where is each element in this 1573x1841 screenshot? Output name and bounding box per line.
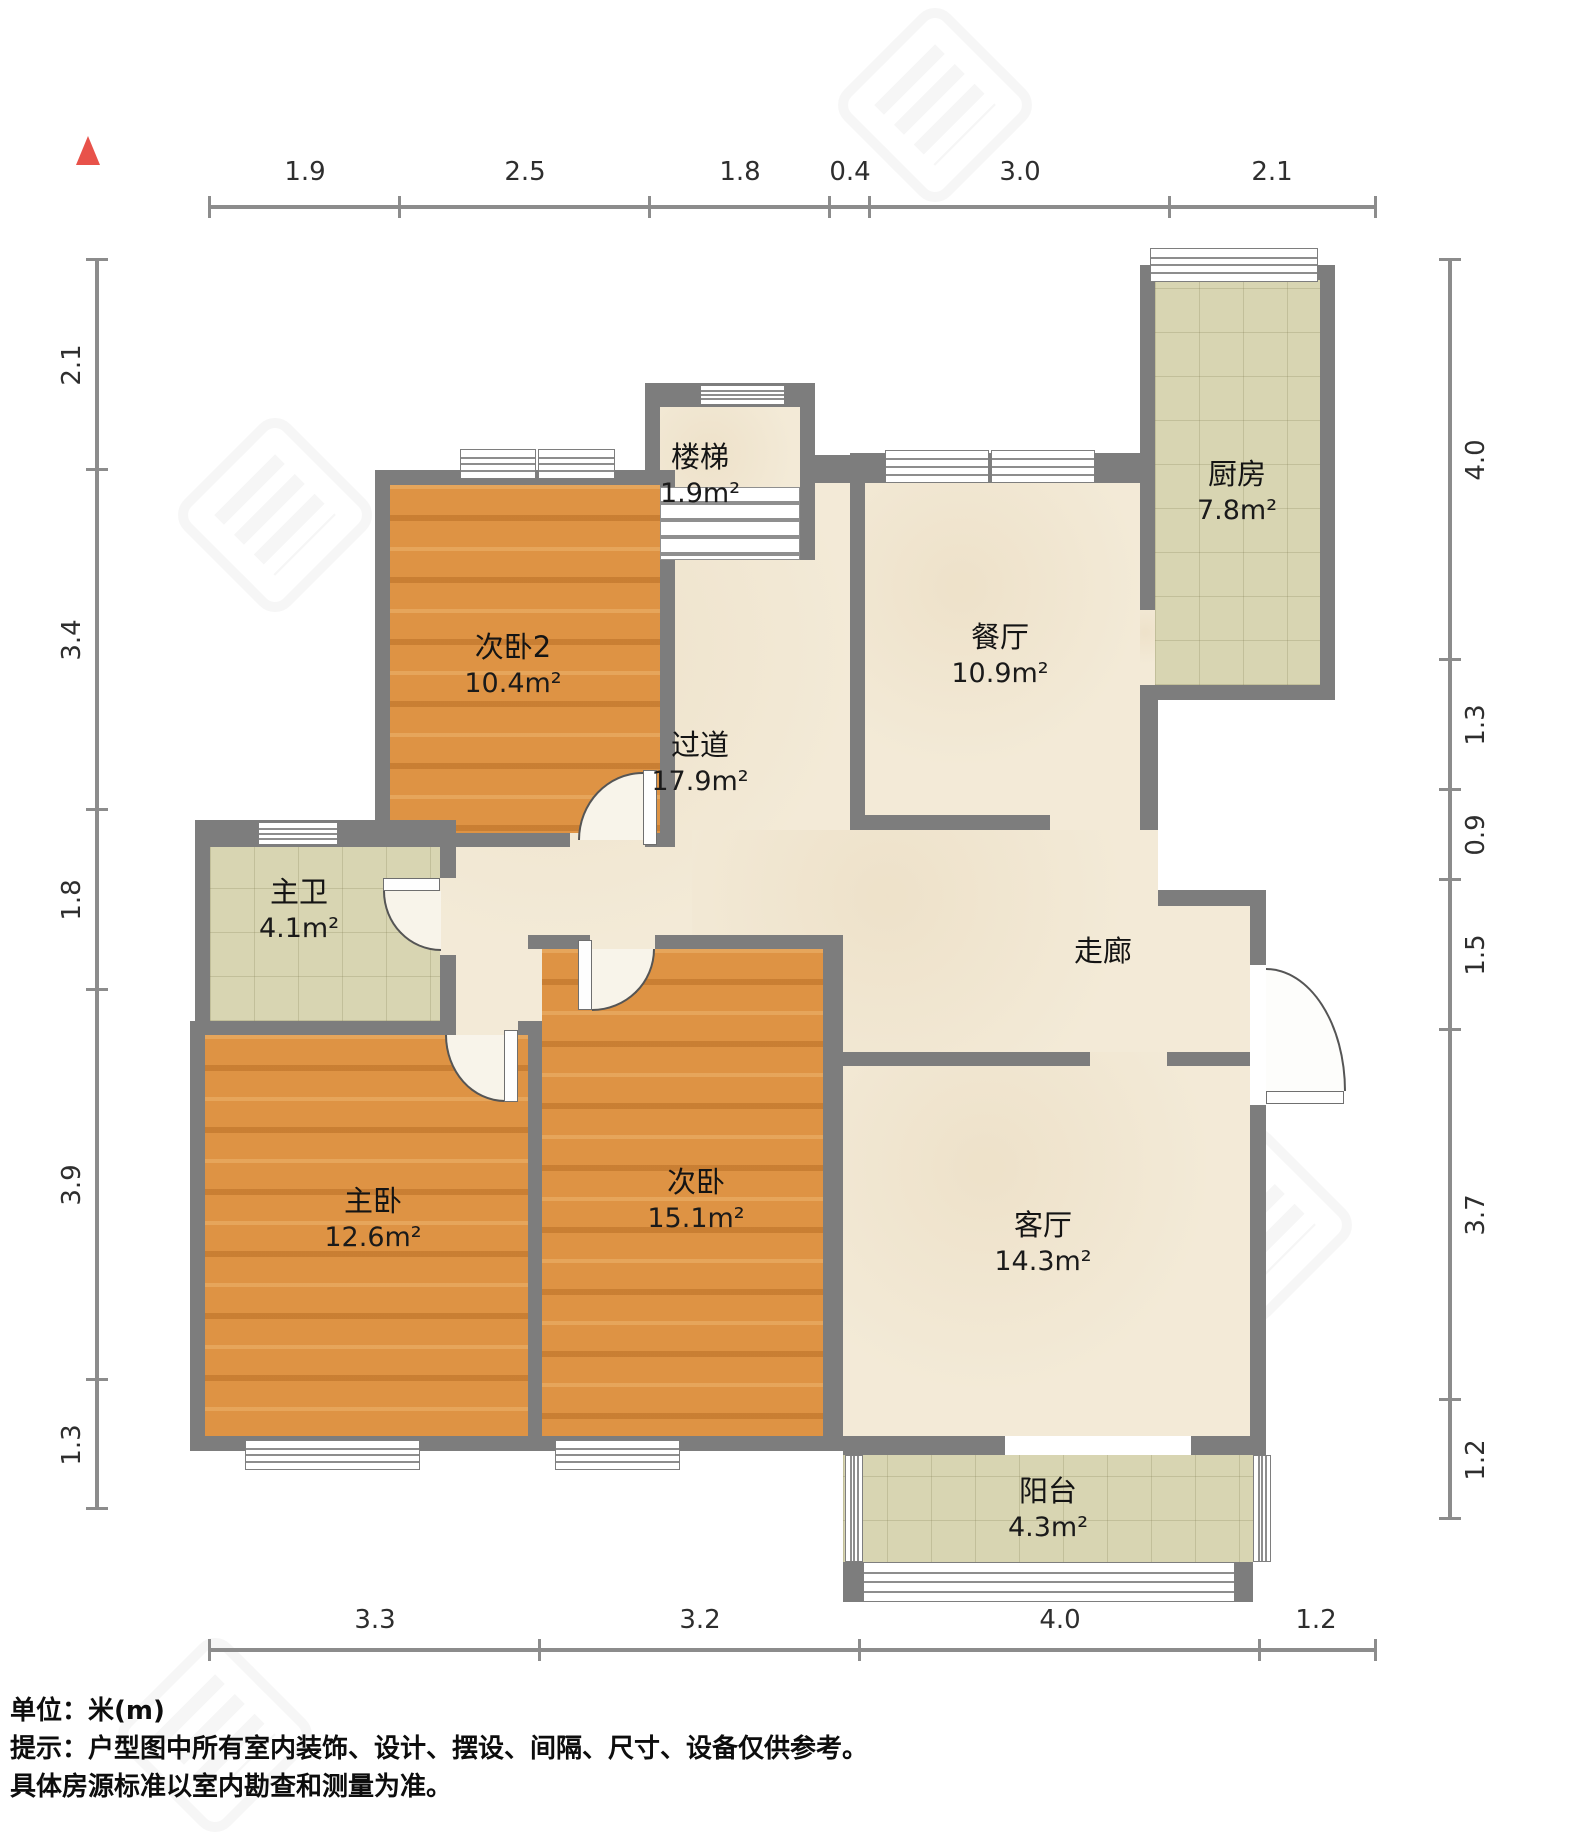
dimension-line-right <box>1448 260 1452 1520</box>
tick <box>1439 658 1461 661</box>
disclaimer-line2: 具体房源标准以室内勘查和测量为准。 <box>10 1766 452 1803</box>
room-label-corridor: 走廊 <box>1074 932 1132 970</box>
wall <box>1191 1436 1266 1455</box>
entry-door-leaf <box>1266 1091 1344 1104</box>
wall <box>843 1436 1005 1455</box>
tick <box>86 1507 108 1510</box>
dim-top: 2.5 <box>504 157 545 187</box>
dim-left: 1.8 <box>57 879 87 920</box>
wall <box>1320 265 1335 700</box>
room-label-master-bedroom: 主卧 12.6m² <box>324 1182 421 1256</box>
entry-opening <box>1250 965 1266 1105</box>
tick <box>398 196 401 218</box>
dim-bottom: 4.0 <box>1039 1605 1080 1635</box>
dim-left: 3.4 <box>57 619 87 660</box>
dim-top: 1.8 <box>719 157 760 187</box>
window <box>885 450 989 483</box>
door-leaf <box>578 940 592 1010</box>
room-label-balcony: 阳台 4.3m² <box>1008 1472 1088 1546</box>
dim-top: 3.0 <box>999 157 1040 187</box>
tick <box>86 258 108 261</box>
dim-right: 4.0 <box>1461 439 1491 480</box>
room-label-bedroom: 次卧 15.1m² <box>647 1163 744 1237</box>
wall <box>865 815 1050 830</box>
window <box>991 450 1095 483</box>
dimension-line-bottom <box>210 1648 1377 1652</box>
tick <box>1374 1639 1377 1661</box>
window <box>1150 248 1318 282</box>
tick <box>538 1639 541 1661</box>
balcony-window <box>863 1562 1235 1602</box>
room-label-kitchen: 厨房 7.8m² <box>1197 455 1277 529</box>
floor-plan: 楼梯 1.9m² 厨房 7.8m² 次卧2 10.4m² 餐厅 10.9m² 过… <box>0 0 1573 1841</box>
wall <box>843 1052 1090 1066</box>
wall <box>1235 1562 1253 1602</box>
room-label-hallway: 过道 17.9m² <box>651 726 748 800</box>
dim-bottom: 3.3 <box>354 1605 395 1635</box>
wall <box>190 1021 205 1451</box>
dim-bottom: 3.2 <box>679 1605 720 1635</box>
room-label-living: 客厅 14.3m² <box>994 1206 1091 1280</box>
wall <box>1250 1105 1266 1436</box>
window <box>700 385 785 405</box>
dim-right: 1.3 <box>1461 704 1491 745</box>
tick <box>1168 196 1171 218</box>
wall <box>195 1021 445 1035</box>
door-leaf <box>504 1030 518 1102</box>
tick <box>208 196 211 218</box>
tick <box>1439 1398 1461 1401</box>
window <box>258 822 338 845</box>
room-label-bedroom2: 次卧2 10.4m² <box>464 628 561 702</box>
wall <box>655 935 843 949</box>
dimension-line-left <box>95 260 99 1510</box>
wall <box>823 935 843 1436</box>
tick <box>1258 1639 1261 1661</box>
wall <box>1140 685 1335 700</box>
dim-right: 0.9 <box>1461 814 1491 855</box>
tick <box>208 1639 211 1661</box>
tick <box>1439 878 1461 881</box>
wall <box>440 820 456 878</box>
wall <box>1250 906 1266 965</box>
tick <box>858 1639 861 1661</box>
wall <box>375 470 390 847</box>
room-label-bathroom: 主卫 4.1m² <box>259 873 339 947</box>
exterior-notch <box>1158 830 1250 890</box>
room-label-dining: 餐厅 10.9m² <box>951 618 1048 692</box>
tick <box>868 196 871 218</box>
dim-left: 3.9 <box>57 1164 87 1205</box>
tick <box>648 196 651 218</box>
unit-note: 单位：米(m) <box>10 1690 165 1727</box>
north-arrow-icon <box>76 136 100 165</box>
wall <box>1158 890 1266 906</box>
dim-right: 1.5 <box>1461 934 1491 975</box>
tick <box>1439 1517 1461 1520</box>
dim-left: 1.3 <box>57 1424 87 1465</box>
wall <box>195 820 210 1035</box>
dim-right: 1.2 <box>1461 1439 1491 1480</box>
window <box>245 1440 420 1470</box>
watermark <box>169 409 381 621</box>
dim-right: 3.7 <box>1461 1194 1491 1235</box>
entry-door-arc <box>1266 968 1346 1091</box>
tick <box>1439 788 1461 791</box>
tick <box>828 196 831 218</box>
tick <box>1439 258 1461 261</box>
dim-left: 2.1 <box>57 344 87 385</box>
room-label-stairs: 楼梯 1.9m² <box>660 438 740 512</box>
wall <box>528 1021 542 1436</box>
wall <box>850 453 865 830</box>
dim-top: 1.9 <box>284 157 325 187</box>
tick <box>1439 1028 1461 1031</box>
tick <box>1374 196 1377 218</box>
wall <box>1140 700 1158 830</box>
window <box>460 449 536 479</box>
dim-bottom: 1.2 <box>1295 1605 1336 1635</box>
door-leaf <box>383 878 440 891</box>
wall <box>843 1562 863 1602</box>
kitchen-doorway <box>1140 610 1155 685</box>
window <box>555 1440 680 1470</box>
balcony-window <box>845 1455 863 1562</box>
tick <box>86 988 108 991</box>
tick <box>86 468 108 471</box>
dimension-line-top <box>210 205 1377 209</box>
tick <box>86 1378 108 1381</box>
tick <box>86 808 108 811</box>
wall <box>1140 265 1155 610</box>
disclaimer-line1: 提示：户型图中所有室内装饰、设计、摆设、间隔、尺寸、设备仅供参考。 <box>10 1728 868 1765</box>
dim-top: 0.4 <box>829 157 870 187</box>
window <box>538 449 615 479</box>
dim-top: 2.1 <box>1251 157 1292 187</box>
balcony-window <box>1253 1455 1271 1562</box>
